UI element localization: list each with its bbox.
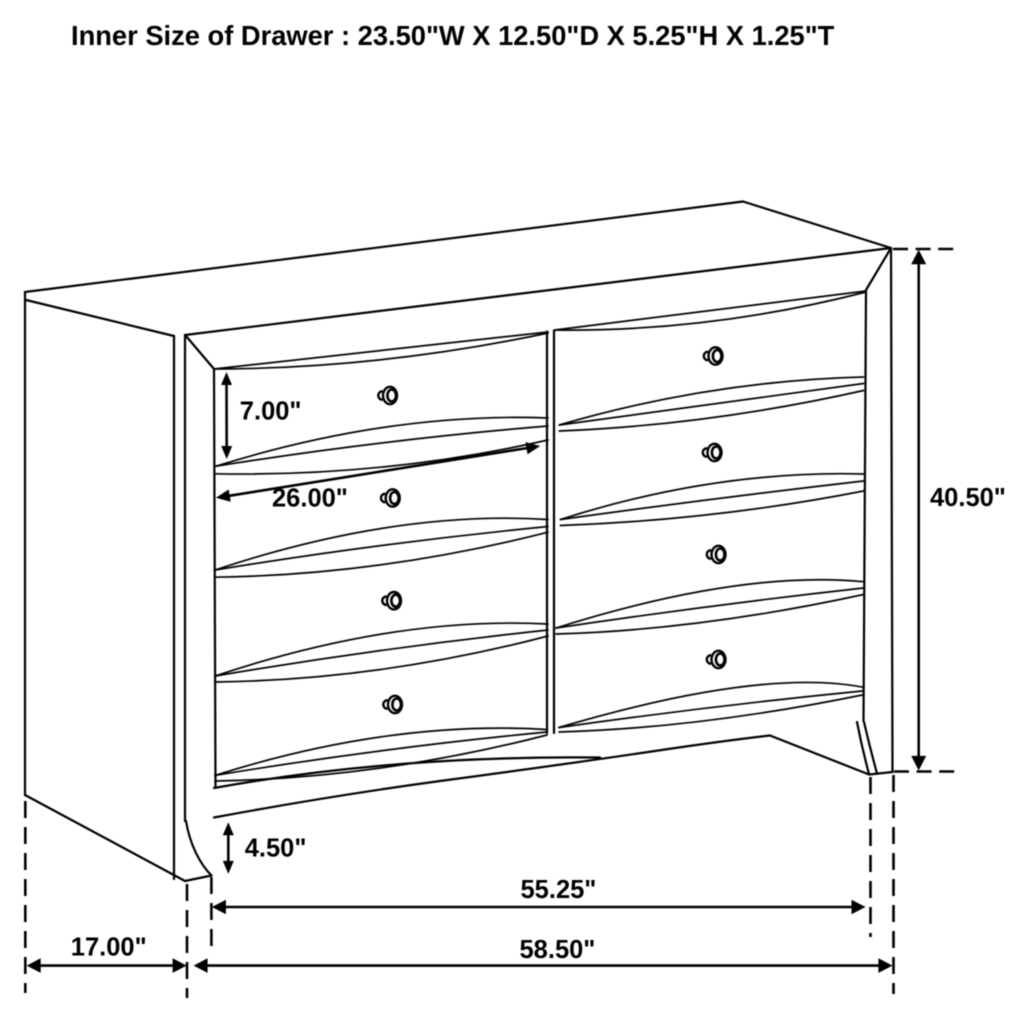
- svg-text:Inner Size of Drawer : 23.50"W: Inner Size of Drawer : 23.50"W X 12.50"D…: [71, 20, 835, 51]
- svg-text:7.00": 7.00": [240, 397, 302, 425]
- svg-text:55.25": 55.25": [521, 876, 597, 904]
- svg-text:4.50": 4.50": [245, 835, 307, 863]
- svg-text:26.00": 26.00": [272, 485, 348, 513]
- svg-text:17.00": 17.00": [71, 934, 147, 962]
- svg-text:58.50": 58.50": [520, 936, 596, 964]
- svg-text:40.50": 40.50": [930, 484, 1006, 512]
